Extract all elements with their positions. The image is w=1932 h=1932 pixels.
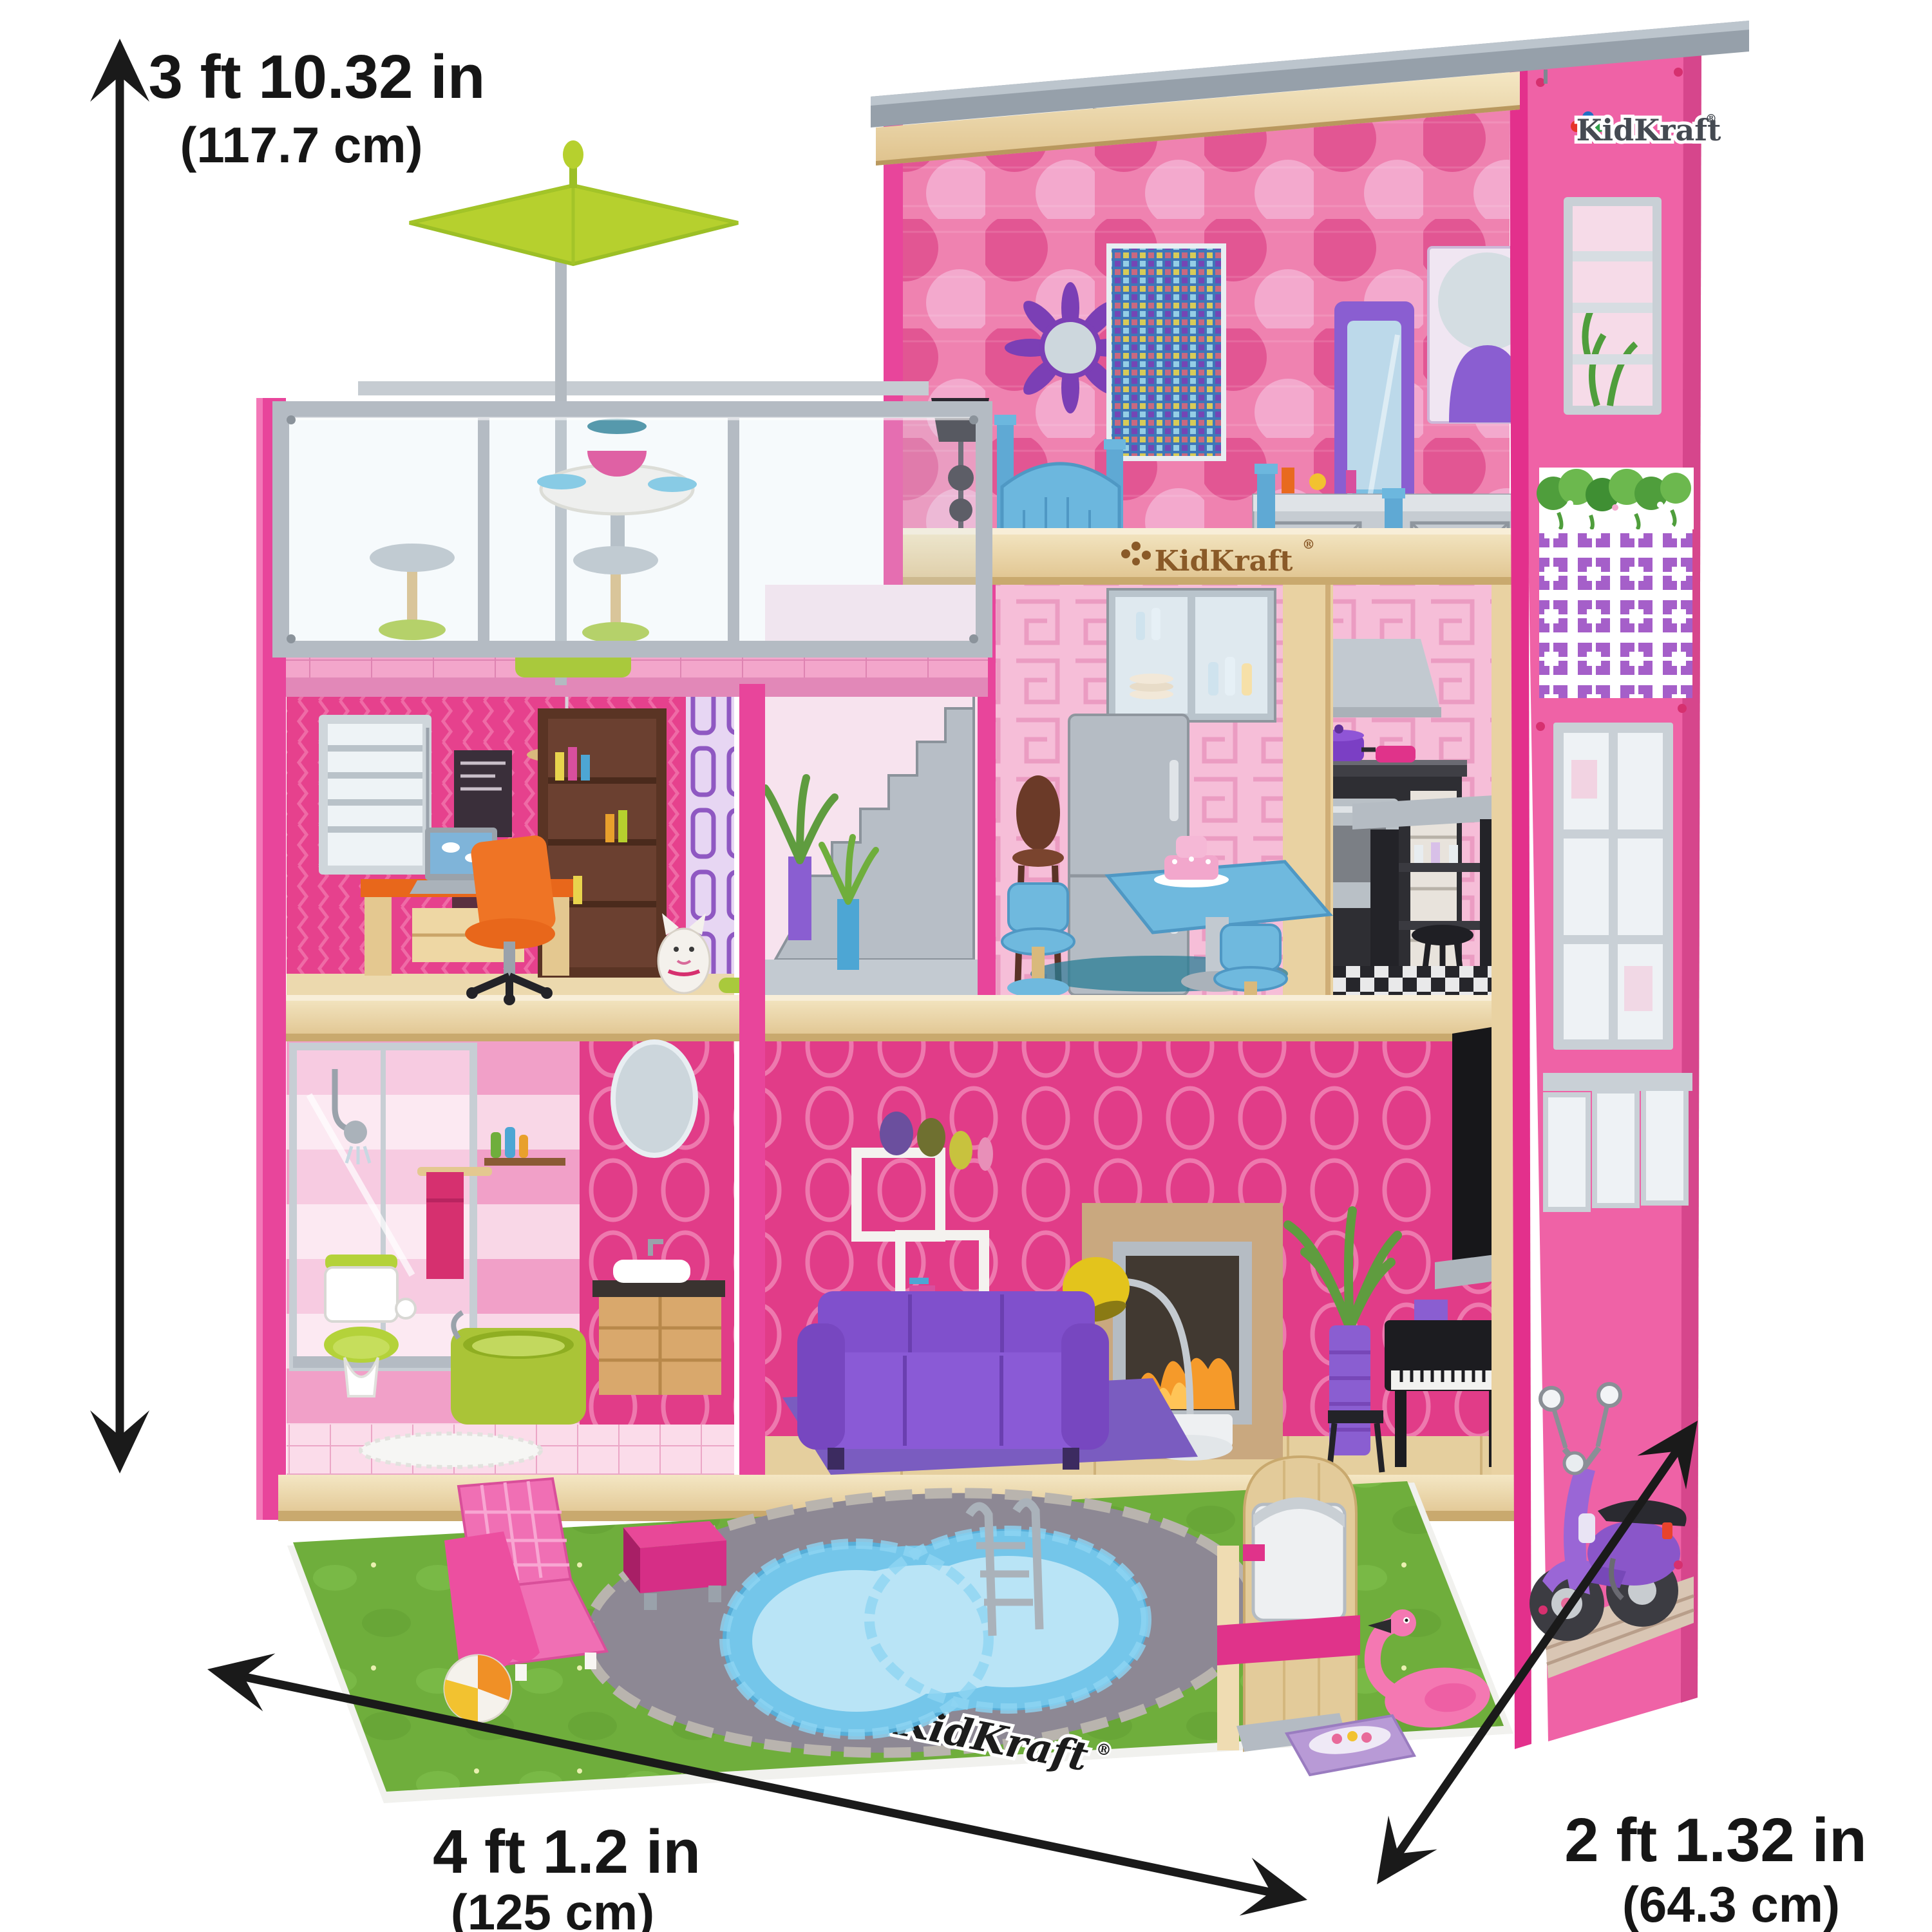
panel-large-window bbox=[1553, 723, 1673, 1050]
stair-landing bbox=[765, 960, 978, 995]
panel-registered-mark: ® bbox=[1705, 112, 1717, 126]
side-panel: KidKraft ® bbox=[1510, 31, 1721, 1749]
svg-text:KidKraft: KidKraft bbox=[1577, 113, 1721, 147]
rear-railing bbox=[358, 381, 929, 395]
vessel-sink bbox=[613, 1260, 690, 1283]
wall-cabinet bbox=[1108, 589, 1275, 721]
kitchen bbox=[996, 585, 1526, 998]
balcony bbox=[281, 140, 984, 685]
checkered-floor bbox=[1333, 966, 1510, 995]
beach-ball bbox=[444, 1655, 511, 1722]
shag-rug bbox=[361, 1434, 541, 1467]
refrigerator bbox=[1069, 715, 1188, 995]
bathroom bbox=[287, 1041, 734, 1475]
lattice-band bbox=[1539, 529, 1692, 698]
yard: KidKraft ® bbox=[287, 1457, 1513, 1803]
sofa bbox=[797, 1291, 1109, 1470]
vase bbox=[880, 1112, 913, 1155]
vase bbox=[917, 1118, 945, 1157]
height-label-metric: (117.7 cm) bbox=[180, 117, 422, 173]
mid-floor-beam bbox=[278, 995, 1522, 1041]
planter-band bbox=[1537, 468, 1694, 529]
bar-stool bbox=[1412, 925, 1473, 945]
depth-label-metric: (64.3 cm) bbox=[1622, 1876, 1840, 1932]
depth-label: 2 ft 1.32 in bbox=[1564, 1806, 1867, 1875]
vase bbox=[949, 1131, 972, 1170]
kidkraft-beam-logo: KidKraft bbox=[1155, 545, 1294, 578]
office-window bbox=[319, 715, 431, 875]
piano-stool bbox=[1328, 1410, 1383, 1423]
living-room bbox=[765, 1024, 1511, 1475]
panel-upper-window bbox=[1564, 197, 1662, 415]
kidkraft-side-logo: KidKraft ® bbox=[1571, 111, 1721, 147]
width-arrowhead-left bbox=[201, 1640, 275, 1711]
width-label-metric: (125 cm) bbox=[451, 1884, 655, 1932]
width-arrowhead-right bbox=[1240, 1858, 1314, 1929]
office bbox=[287, 697, 757, 1005]
kitchen-stool-right bbox=[1215, 925, 1287, 996]
panel-lower-windows bbox=[1543, 1073, 1692, 1209]
shower-box bbox=[1243, 1497, 1345, 1620]
depth-arrowhead-bottom bbox=[1352, 1815, 1437, 1901]
beam-registered-mark: ® bbox=[1302, 536, 1315, 552]
center-divider-wall bbox=[739, 684, 765, 1475]
railing-frame bbox=[281, 410, 984, 649]
height-label: 3 ft 10.32 in bbox=[149, 43, 486, 111]
bathtub bbox=[451, 1312, 586, 1425]
width-label: 4 ft 1.2 in bbox=[433, 1817, 701, 1886]
vase bbox=[978, 1137, 993, 1171]
box-flag bbox=[1243, 1544, 1265, 1561]
dollhouse-dimensions-illustration: KidKraft ® bbox=[0, 0, 1932, 1932]
mosaic-wall-art bbox=[1109, 246, 1224, 459]
vanity-mirror bbox=[613, 1042, 696, 1155]
